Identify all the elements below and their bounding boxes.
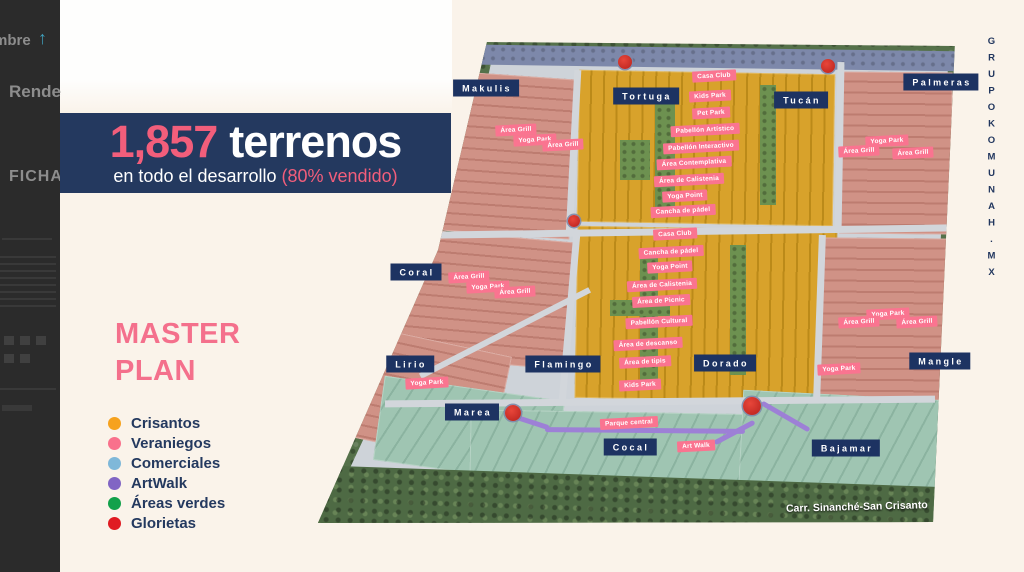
legend-label: Glorietas <box>131 515 196 532</box>
dimmed-icon <box>20 336 30 345</box>
terrenos-subtitle: en todo el desarrollo (80% vendido) <box>113 166 397 187</box>
terrenos-banner: 1,857 terrenos en todo el desarrollo (80… <box>60 113 451 193</box>
district-mangle <box>819 237 950 400</box>
subtitle-prefix: en todo el desarrollo <box>113 166 281 186</box>
legend-label: Crisantos <box>131 415 200 432</box>
title-line-2: PLAN <box>115 355 196 387</box>
legend-item-comerciales: Comerciales <box>108 453 240 473</box>
legend-dot-glorietas <box>108 517 121 530</box>
legend-item-areas-verdes: Áreas verdes <box>108 493 240 513</box>
legend-label: Veraniegos <box>131 435 211 452</box>
brand-vertical-text: GRUPOKOMUNAH.MX <box>986 36 997 226</box>
legend-item-crisantos: Crisantos <box>108 413 240 433</box>
dimmed-content-line <box>2 238 52 240</box>
legend-item-glorietas: Glorietas <box>108 513 240 533</box>
park-area <box>610 300 670 316</box>
sort-by-name-label: mbre <box>0 32 31 49</box>
park-area <box>620 140 650 180</box>
dimmed-content-line <box>0 277 56 279</box>
dimmed-icon <box>36 336 46 345</box>
legend-dot-areas-verdes <box>108 497 121 510</box>
legend-label: Áreas verdes <box>131 495 225 512</box>
top-highlight-area <box>60 0 452 113</box>
district-makulis <box>435 70 581 239</box>
park-area <box>760 85 776 205</box>
dimmed-content-line <box>0 270 56 272</box>
dimmed-content-line <box>0 256 56 258</box>
legend-dot-comerciales <box>108 457 121 470</box>
master-plan-section: MASTER PLAN Crisantos Veraniegos Comerci… <box>115 316 240 533</box>
slide-root: mbre ↑ Rende FICHA 1,857 terrenos en tod… <box>0 0 1024 572</box>
dimmed-icon <box>20 354 30 363</box>
terrenos-unit: terrenos <box>229 119 401 164</box>
legend-dot-artwalk <box>108 477 121 490</box>
render-section-label[interactable]: Rende <box>9 82 61 102</box>
legend-label: ArtWalk <box>131 475 187 492</box>
legend-dot-crisantos <box>108 417 121 430</box>
legend-item-veraniegos: Veraniegos <box>108 433 240 453</box>
ficha-section-label[interactable]: FICHA <box>9 168 63 186</box>
dimmed-content-line <box>0 291 56 293</box>
subtitle-sold-percent: (80% vendido) <box>282 166 398 186</box>
sort-ascending-arrow-icon[interactable]: ↑ <box>38 28 47 49</box>
terrenos-count: 1,857 <box>110 119 218 164</box>
district-palmeras <box>839 72 952 235</box>
dimmed-content-line <box>0 388 56 390</box>
legend-dot-veraniegos <box>108 437 121 450</box>
legend-item-artwalk: ArtWalk <box>108 473 240 493</box>
title-line-1: MASTER <box>115 318 240 350</box>
dimmed-content-line <box>0 284 56 286</box>
park-area <box>655 90 675 215</box>
dimmed-content-line <box>0 263 56 265</box>
dimmed-icon <box>4 354 14 363</box>
map-legend: Crisantos Veraniegos Comerciales ArtWalk… <box>108 413 240 533</box>
dimmed-content-line <box>0 298 56 300</box>
dimmed-content-line <box>2 405 32 411</box>
terrenos-count-line: 1,857 terrenos <box>110 119 402 164</box>
legend-label: Comerciales <box>131 455 220 472</box>
dimmed-icon <box>4 336 14 345</box>
dimmed-left-panel: mbre ↑ Rende FICHA <box>0 0 60 572</box>
page-title: MASTER PLAN <box>115 316 240 389</box>
park-area <box>730 245 746 375</box>
district-tortuga-tucan <box>577 70 836 226</box>
dimmed-content-line <box>0 305 56 307</box>
